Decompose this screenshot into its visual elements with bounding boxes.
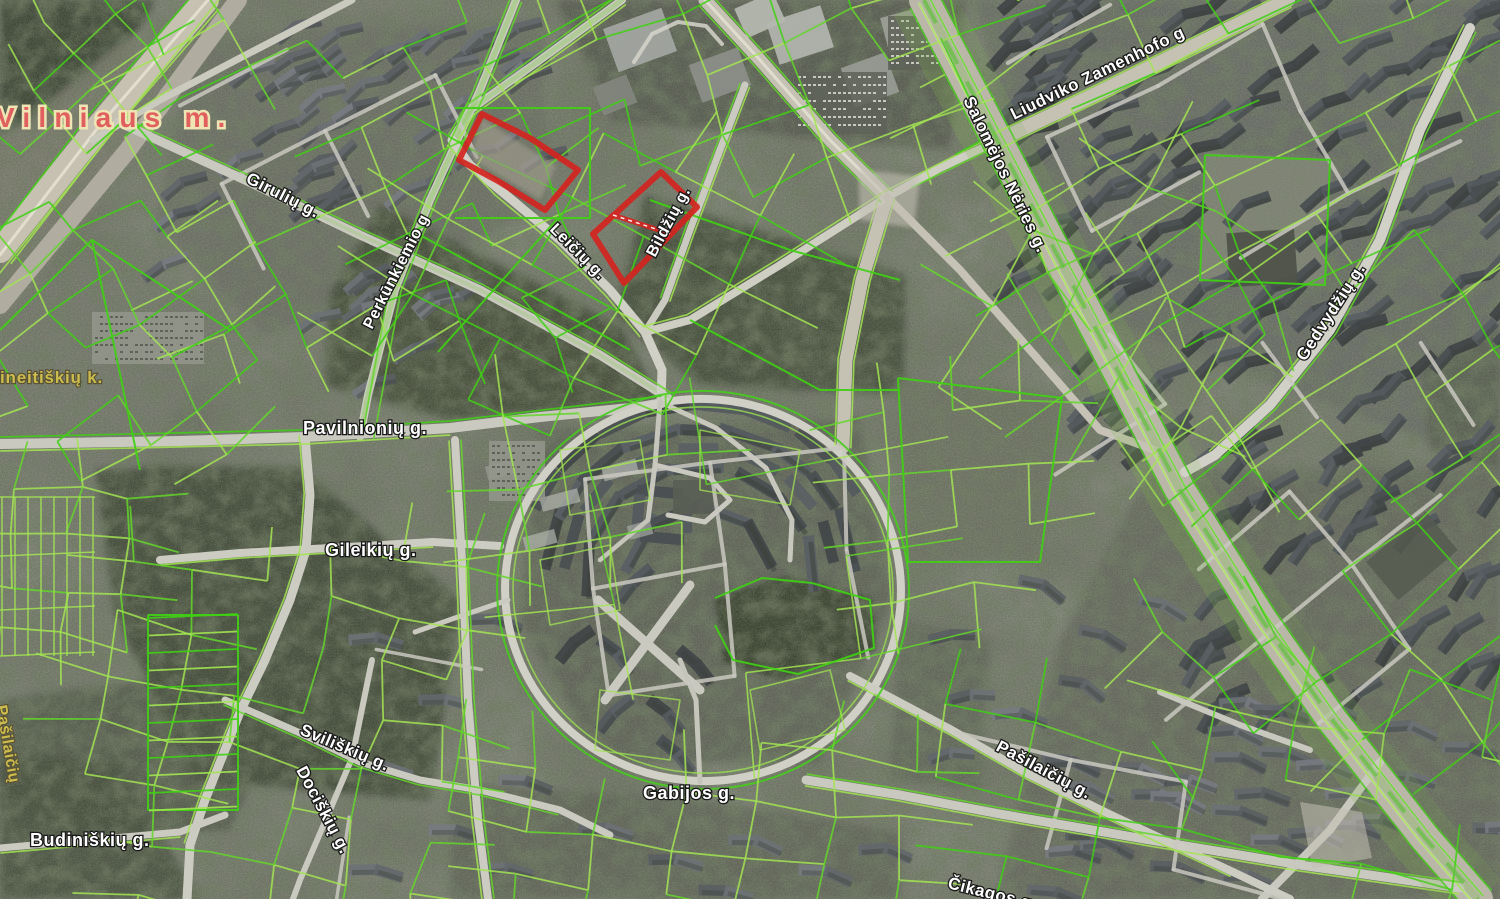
svg-text:Gileikių g.: Gileikių g. (325, 540, 417, 560)
svg-text:Gineitiškių k.: Gineitiškių k. (0, 368, 103, 387)
svg-text:Pavilnionių g.: Pavilnionių g. (303, 418, 427, 438)
svg-text:Vilniaus m.: Vilniaus m. (0, 102, 234, 133)
svg-text:Budiniškių g.: Budiniškių g. (30, 830, 150, 850)
svg-text:Gabijos g.: Gabijos g. (643, 783, 735, 803)
